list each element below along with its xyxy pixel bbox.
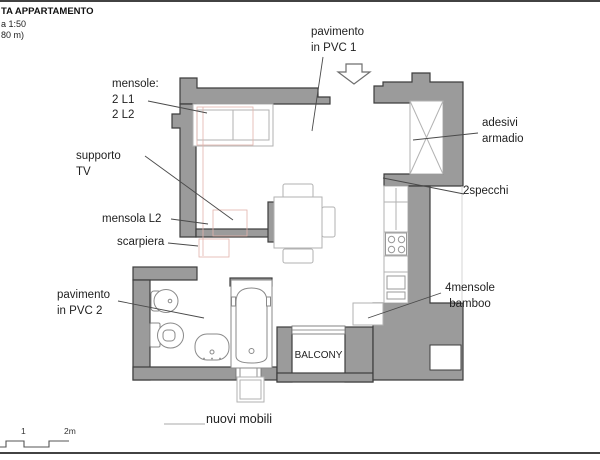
wall-bathroom-left	[133, 280, 150, 380]
label-scarpiera: scarpiera	[117, 235, 164, 251]
bidet	[151, 290, 178, 313]
chair-top	[283, 184, 313, 198]
wall-bathroom-top	[133, 267, 197, 280]
label-adesivi-armadio: adesivi armadio	[482, 116, 524, 147]
label-mensole: mensole: 2 L1 2 L2	[112, 77, 159, 124]
bathtub	[231, 280, 272, 368]
sheet-bottom-border	[0, 452, 600, 454]
plan-title: TA APPARTAMENTO	[1, 6, 94, 17]
wall-top-left	[180, 78, 330, 104]
label-mensole-bamboo: 4mensole bamboo	[441, 281, 499, 312]
scale-tick-1: 1	[21, 427, 26, 436]
scale-bar	[0, 441, 69, 447]
entrance-arrow-icon	[338, 64, 370, 84]
dining-table-and-chairs	[274, 184, 335, 263]
wall-notch	[430, 345, 461, 370]
bathroom-sink	[195, 334, 229, 360]
external-unit	[237, 377, 264, 402]
bathroom-fixtures	[150, 280, 272, 368]
stove	[386, 233, 407, 255]
label-balcony: BALCONY	[292, 348, 345, 364]
plan-dimension-note: 80 m)	[1, 30, 24, 41]
plan-scale-note: a 1:50	[1, 19, 26, 30]
kitchen-counter	[384, 186, 408, 303]
wall-balcony-bottom	[277, 373, 373, 382]
floor-plan-drawing	[0, 0, 600, 460]
chair-bottom	[283, 249, 313, 263]
floor-plan-sheet: TA APPARTAMENTO a 1:50 80 m) pavimento i…	[0, 0, 600, 460]
sofa	[193, 104, 273, 146]
label-mensola-l2: mensola L2	[102, 212, 161, 228]
table	[274, 197, 322, 248]
wall-left	[172, 104, 196, 237]
toilet	[150, 323, 184, 348]
label-nuovi-mobili: nuovi mobili	[206, 412, 272, 428]
label-supporto-tv: supporto TV	[76, 149, 121, 180]
label-specchi: 2specchi	[463, 184, 508, 200]
label-pavimento-pvc1: pavimento in PVC 1	[311, 25, 364, 56]
sheet-top-border	[0, 0, 600, 2]
label-pavimento-pvc2: pavimento in PVC 2	[57, 288, 110, 319]
leader-scarpiera	[168, 243, 198, 246]
scale-tick-2m: 2m	[64, 427, 76, 436]
chair-right	[322, 207, 335, 237]
